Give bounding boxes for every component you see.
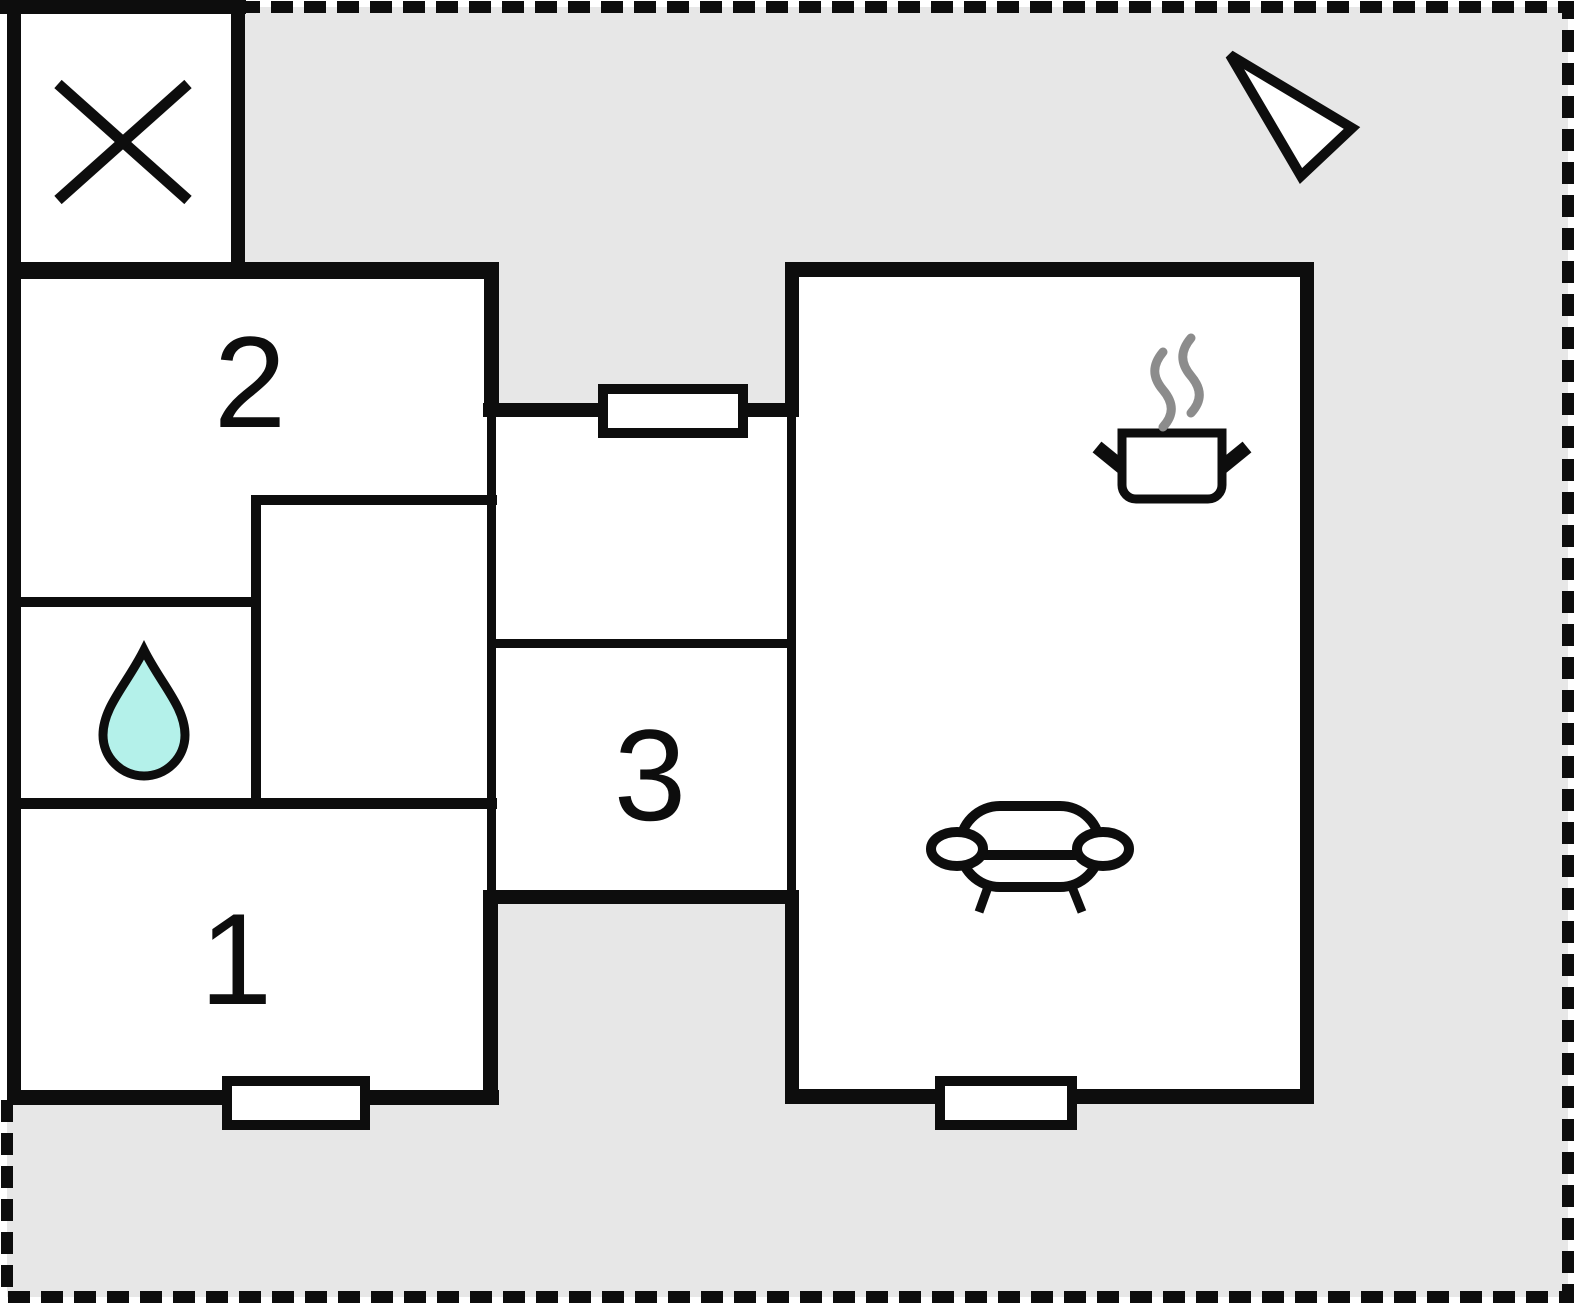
wall — [251, 495, 497, 505]
wall — [491, 639, 788, 648]
wall — [7, 262, 499, 279]
floor-plan: 2 3 1 — [0, 0, 1575, 1304]
room-3-label: 3 — [614, 702, 686, 848]
wall — [787, 414, 796, 894]
wall — [1300, 262, 1314, 1104]
cooking-pot-icon — [1097, 433, 1247, 499]
wall — [7, 0, 21, 1105]
wall — [484, 262, 499, 417]
wall — [7, 597, 258, 607]
door-opening — [940, 1081, 1072, 1125]
door-opening — [227, 1081, 365, 1125]
door-opening — [603, 389, 743, 433]
wall — [483, 890, 799, 904]
wall — [0, 0, 246, 14]
wall — [251, 495, 261, 807]
room-1-label: 1 — [200, 886, 272, 1032]
wall — [487, 414, 496, 894]
wall — [231, 0, 245, 276]
wall — [785, 890, 799, 1104]
page-margin — [0, 0, 8, 1098]
wall — [483, 890, 498, 1105]
room-2-label: 2 — [214, 309, 286, 455]
wall — [483, 403, 605, 417]
floor-plan-page: 2 3 1 — [0, 0, 1575, 1304]
living-room-floor — [795, 272, 1303, 1092]
wall — [785, 262, 1313, 277]
wall — [785, 262, 799, 417]
wall — [7, 798, 497, 809]
